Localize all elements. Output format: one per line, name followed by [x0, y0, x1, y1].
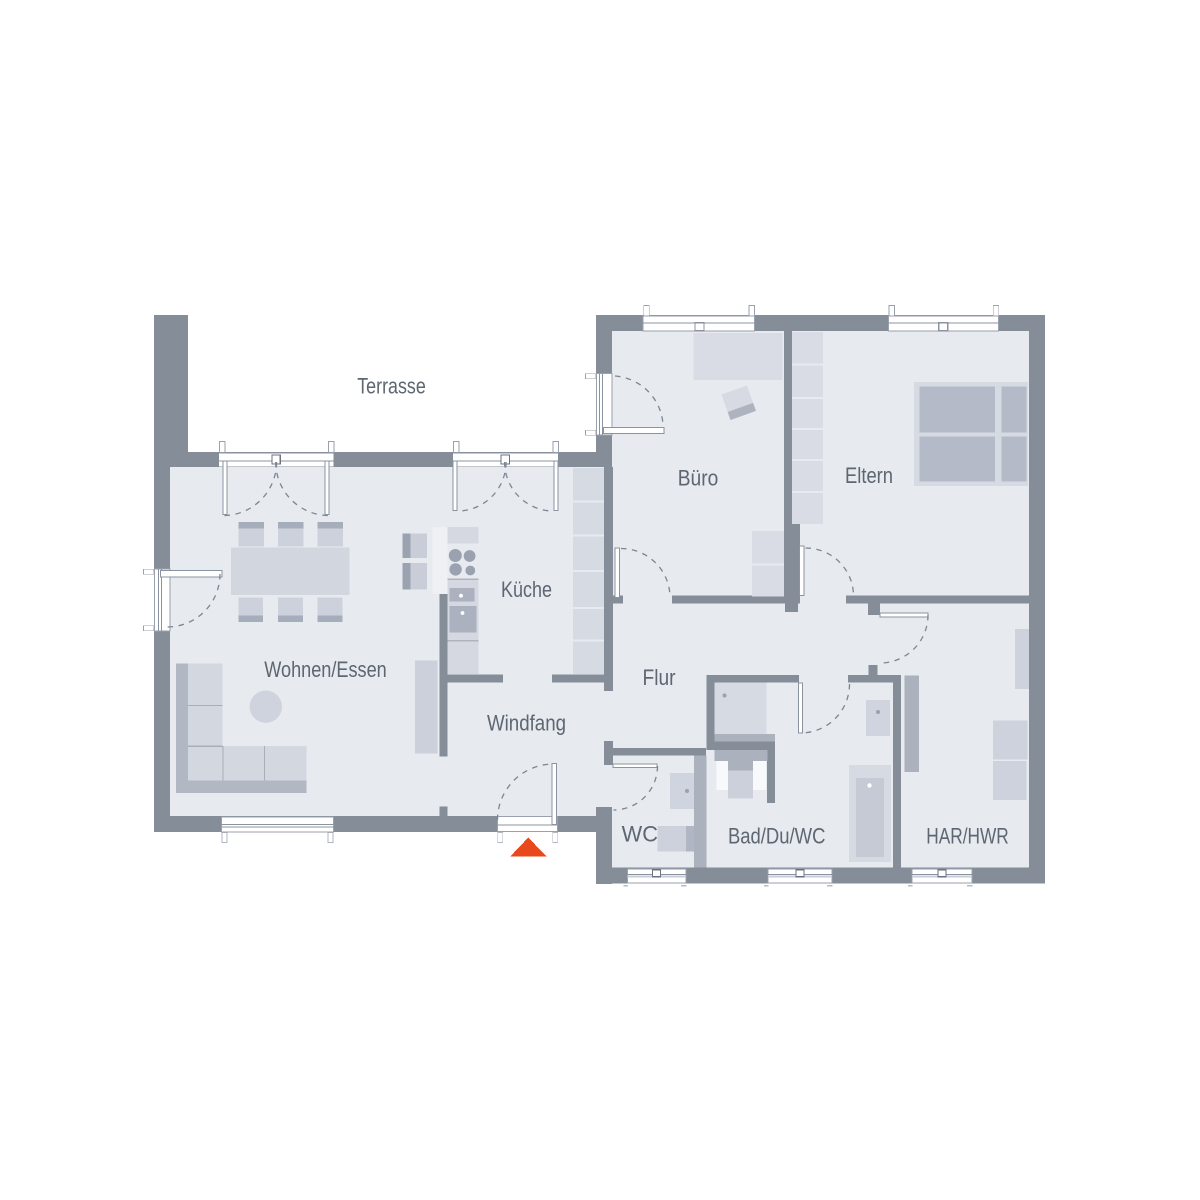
svg-text:HAR/HWR: HAR/HWR	[926, 824, 1009, 849]
svg-text:Bad/Du/WC: Bad/Du/WC	[728, 824, 826, 849]
svg-text:Büro: Büro	[678, 465, 719, 490]
svg-text:Flur: Flur	[643, 665, 676, 690]
svg-text:Windfang: Windfang	[487, 710, 566, 735]
svg-text:Wohnen/Essen: Wohnen/Essen	[264, 657, 387, 682]
svg-text:Terrasse: Terrasse	[357, 374, 426, 399]
svg-text:Küche: Küche	[501, 577, 552, 602]
svg-text:Eltern: Eltern	[845, 463, 893, 488]
svg-text:WC: WC	[622, 822, 658, 847]
